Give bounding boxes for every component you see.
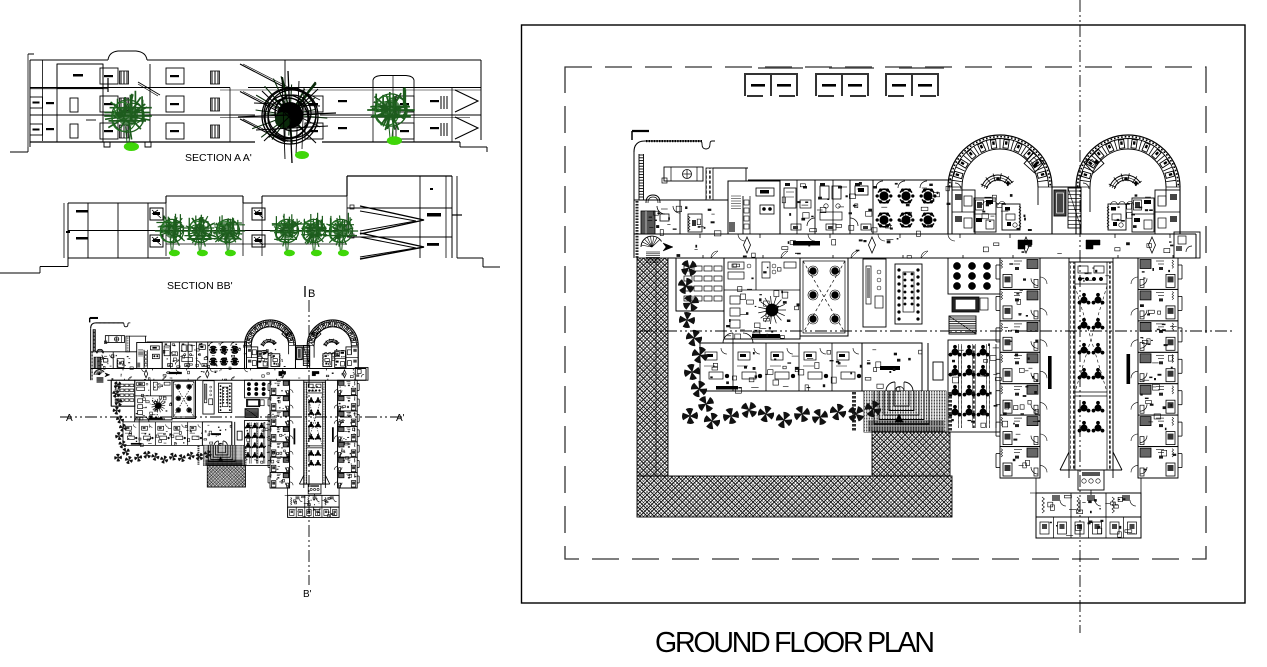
svg-text:B: B — [308, 288, 315, 300]
svg-text:SECTION BB': SECTION BB' — [167, 280, 233, 292]
svg-text:A': A' — [396, 413, 405, 424]
svg-text:SECTION A A': SECTION A A' — [185, 152, 252, 164]
svg-text:B': B' — [303, 589, 312, 600]
svg-text:GROUND FLOOR PLAN: GROUND FLOOR PLAN — [655, 627, 933, 659]
svg-text:A: A — [66, 413, 73, 424]
